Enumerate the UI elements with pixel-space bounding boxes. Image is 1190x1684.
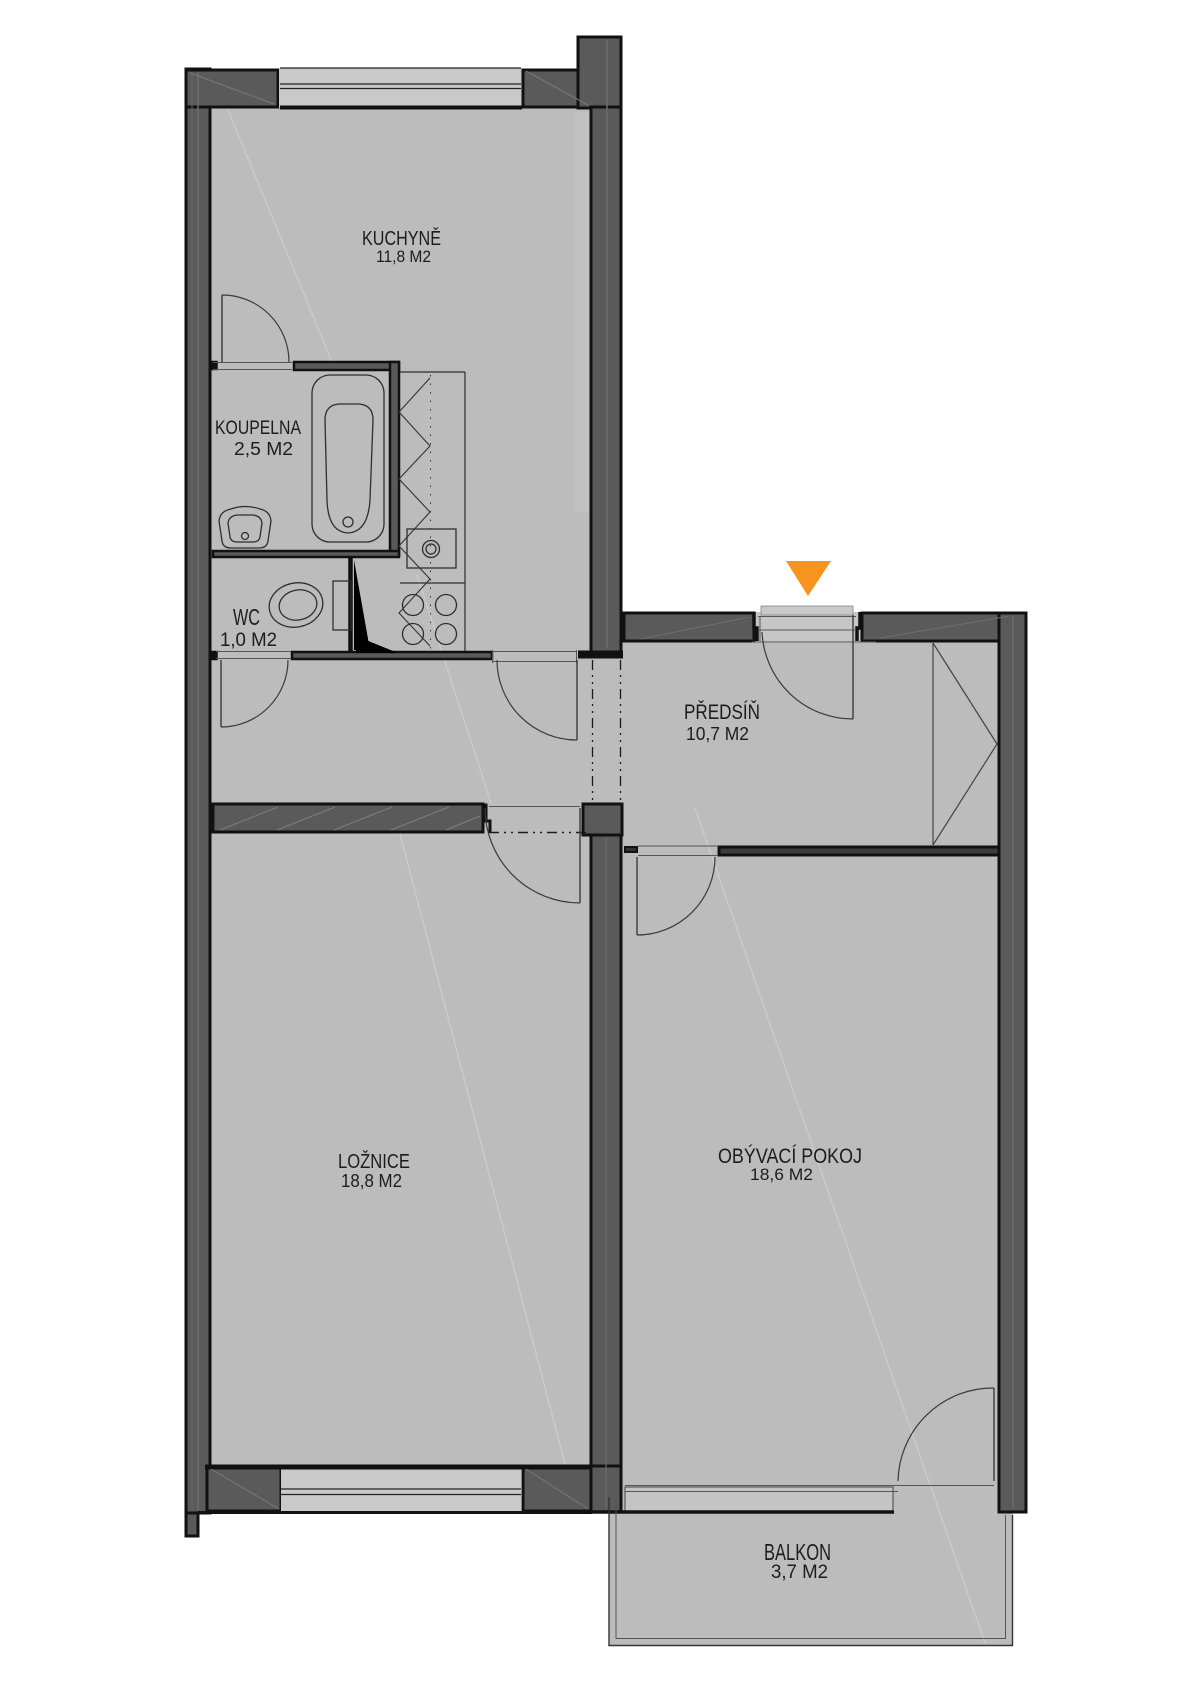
svg-text:18,8 M2: 18,8 M2 [341, 1171, 402, 1191]
svg-text:1,0 M2: 1,0 M2 [220, 630, 277, 651]
svg-text:18,6 M2: 18,6 M2 [750, 1165, 813, 1184]
svg-text:3,7 M2: 3,7 M2 [771, 1562, 828, 1583]
svg-text:LOŽNICE: LOŽNICE [338, 1150, 410, 1173]
svg-text:10,7 M2: 10,7 M2 [686, 724, 749, 744]
svg-text:WC: WC [233, 604, 260, 630]
svg-text:PŘEDSÍŇ: PŘEDSÍŇ [684, 701, 760, 724]
svg-text:KOUPELNA: KOUPELNA [215, 418, 301, 439]
svg-text:KUCHYNĚ: KUCHYNĚ [362, 227, 441, 250]
svg-text:11,8 M2: 11,8 M2 [376, 248, 431, 266]
svg-text:2,5 M2: 2,5 M2 [234, 439, 293, 459]
